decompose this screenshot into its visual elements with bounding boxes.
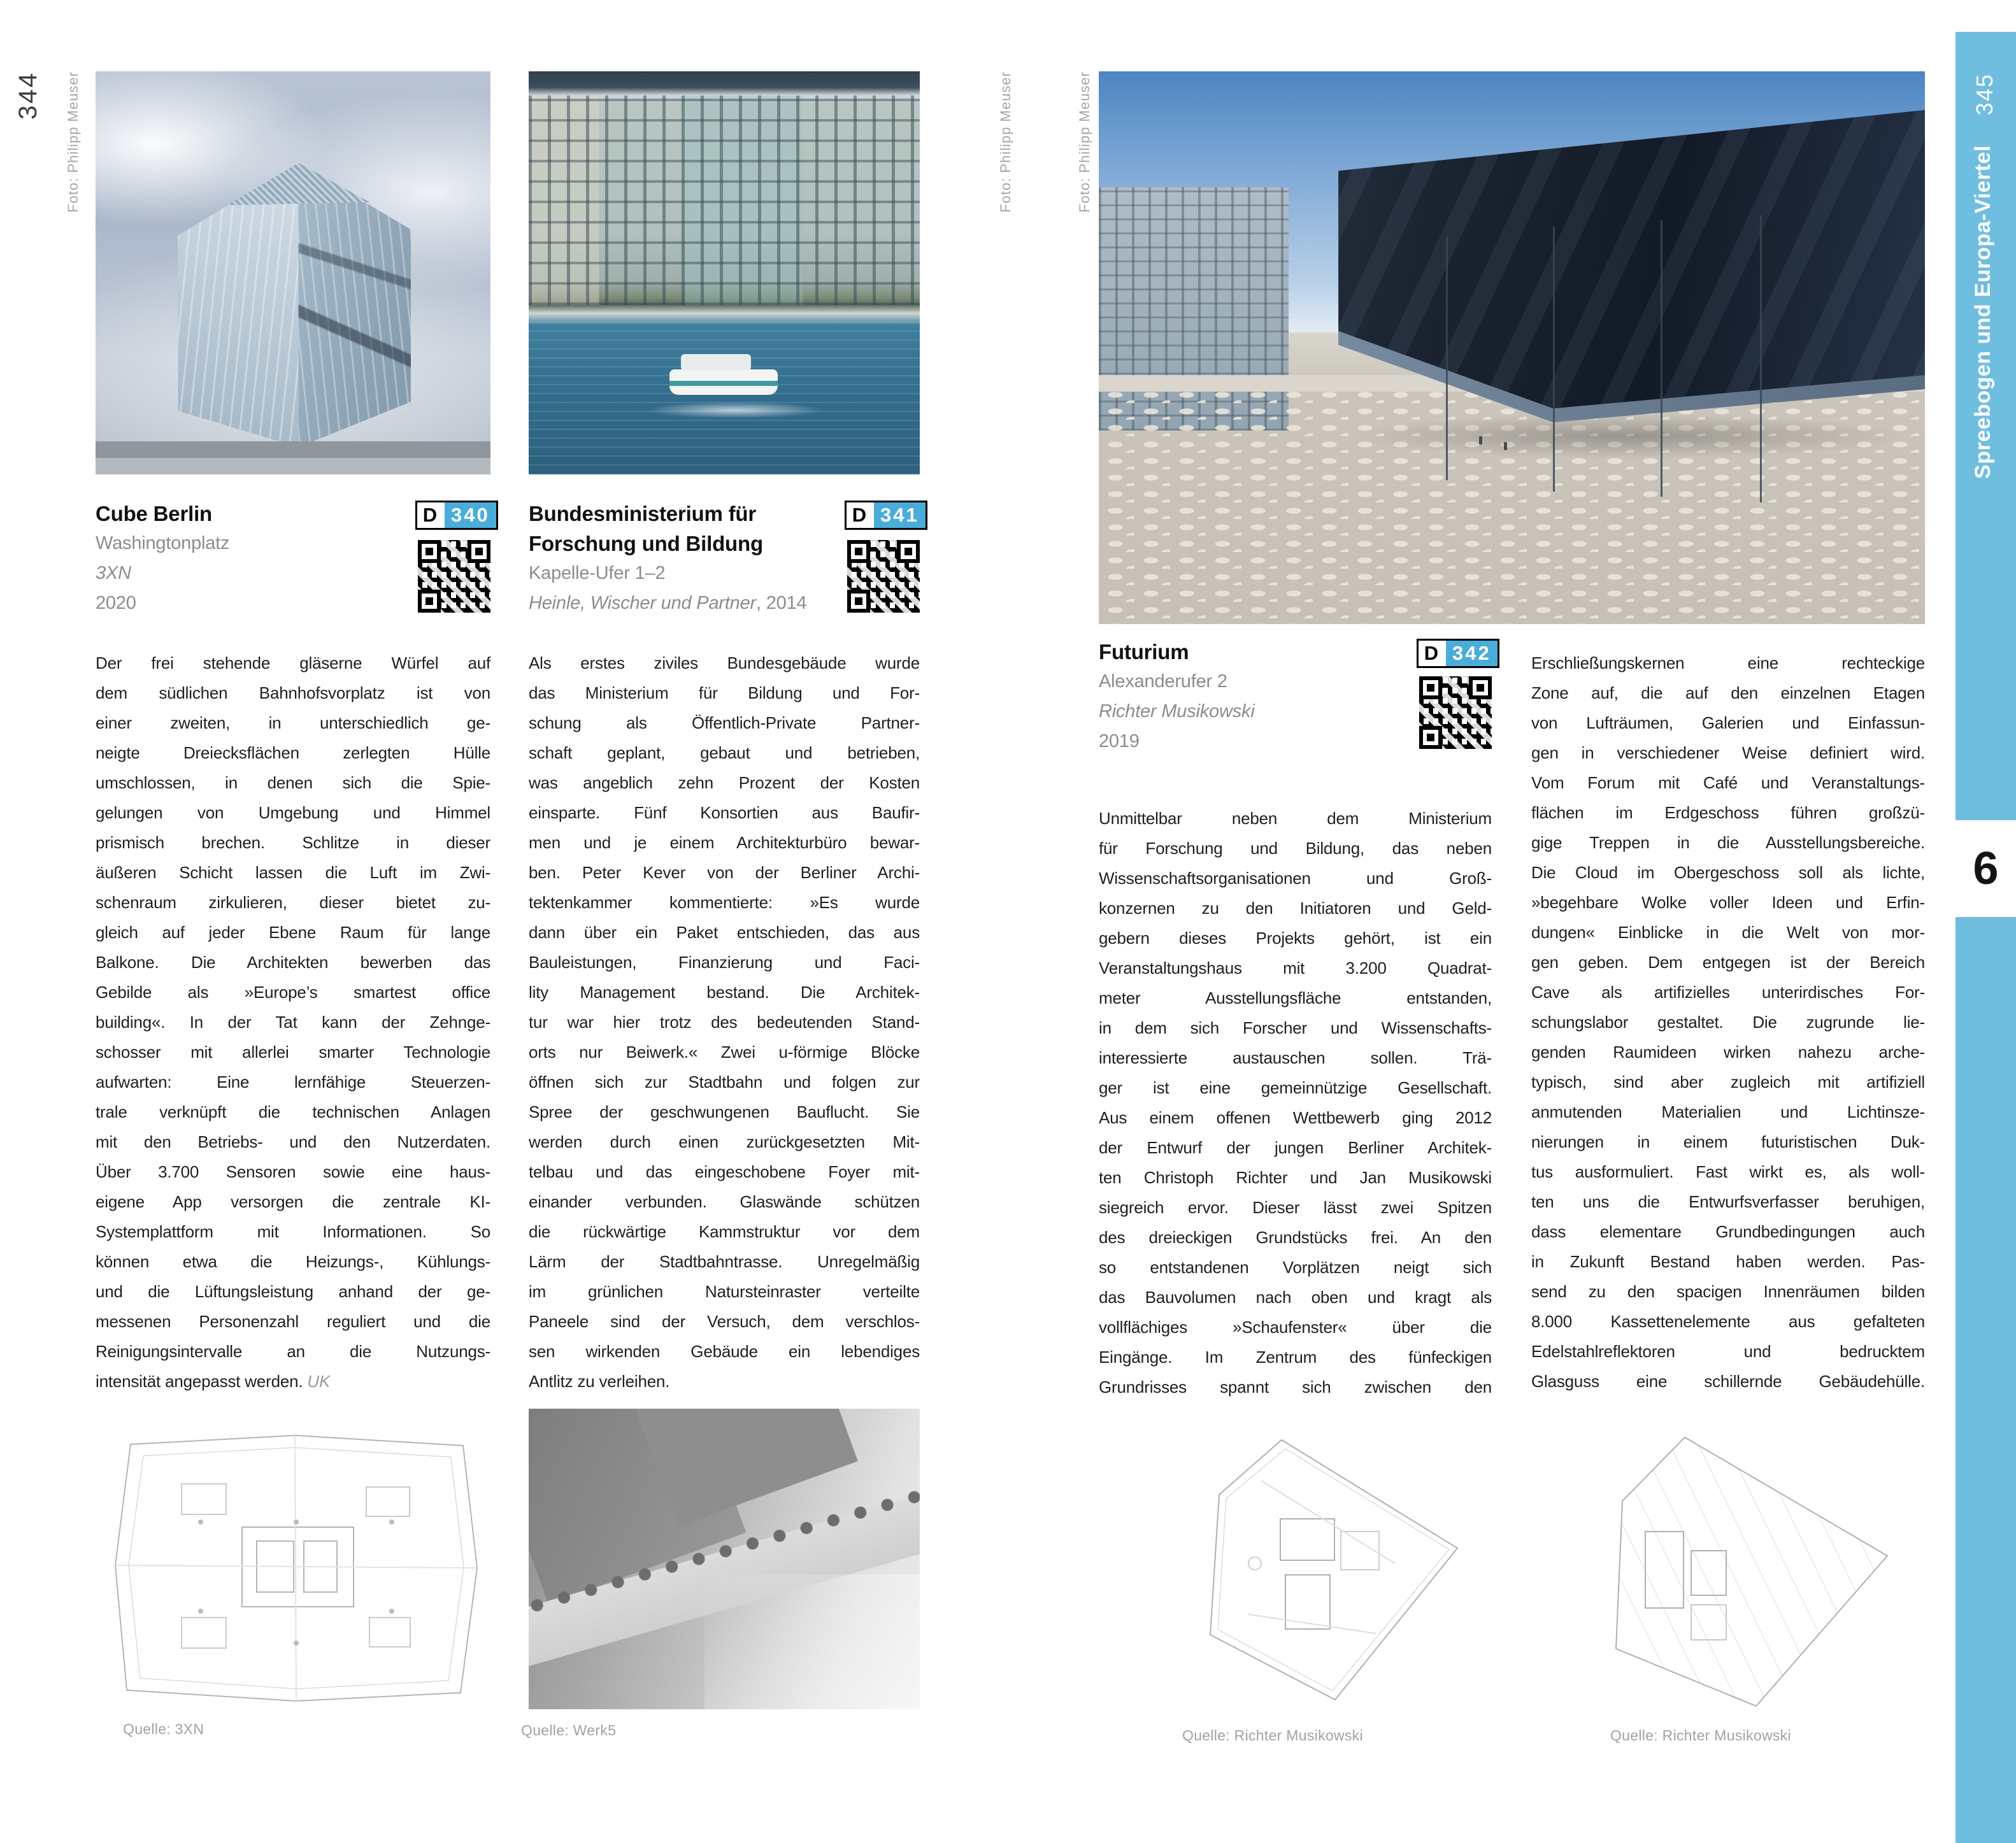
badge-number: 341	[874, 502, 926, 528]
qr-code	[418, 540, 490, 613]
photo-futurium	[1099, 71, 1925, 624]
badge-letter: D	[1419, 641, 1444, 666]
badge-letter: D	[417, 502, 443, 528]
body-text-cube: Der frei stehende gläserne Würfel auf de…	[96, 648, 490, 1367]
photo-credit: Foto: Philipp Meuser	[1078, 71, 1092, 213]
floor-plan-futurium-left	[1185, 1423, 1471, 1709]
entry-architect: Heinle, Wischer und Partner	[529, 593, 756, 613]
page-number-right: 345	[1973, 73, 1996, 115]
chapter-sidebar-bottom	[1955, 917, 2016, 1843]
lamp-post	[1553, 226, 1555, 492]
photo-credit: Foto: Philipp Meuser	[999, 71, 1013, 213]
entry-year: , 2014	[756, 593, 806, 613]
body-text-bmbf: Als erstes ziviles Bundesgebäude wurde d…	[529, 648, 920, 1367]
qr-finder-icon	[847, 590, 870, 613]
pavement-strip	[96, 458, 490, 474]
map-badge-d342: D 342	[1417, 639, 1499, 668]
figure-caption: Quelle: Richter Musikowski	[1610, 1727, 1791, 1744]
author-initials: UK	[307, 1372, 330, 1391]
photo-cube-berlin	[96, 71, 490, 474]
figure-caption: Quelle: 3XN	[123, 1721, 204, 1738]
qr-code	[847, 540, 920, 613]
window-grid	[529, 96, 920, 305]
ground-strip	[96, 441, 490, 458]
qr-finder-icon	[418, 540, 441, 563]
chapter-title: Spreebogen und Europa-Viertel	[1972, 145, 1994, 479]
aerial-model-photo	[529, 1409, 920, 1709]
map-badge-d341: D 341	[845, 501, 927, 530]
badge-number: 340	[445, 502, 496, 528]
chapter-number-tab: 6	[1955, 820, 2016, 917]
photo-bundesministerium	[529, 71, 920, 474]
body-text-bmbf-end: Antlitz zu verleihen.	[529, 1367, 920, 1397]
lamp-post	[1446, 237, 1448, 480]
pedestrian	[1504, 442, 1507, 450]
qr-finder-icon	[1419, 676, 1442, 699]
qr-finder-icon	[418, 590, 441, 613]
qr-finder-icon	[1419, 726, 1442, 749]
body-text-futurium-col2: Erschließungskernen eine rechteckige Zon…	[1531, 648, 1925, 1397]
lamp-post	[1760, 215, 1762, 502]
body-text-futurium-col1: Unmittelbar neben dem Ministerium für Fo…	[1099, 804, 1492, 1402]
qr-finder-icon	[468, 540, 490, 563]
book-spread: 344 Foto: Philipp Meuser Foto: Philipp M…	[0, 0, 2016, 1843]
page-number-left: 344	[15, 71, 41, 120]
qr-finder-icon	[847, 540, 870, 563]
figure-caption: Quelle: Werk5	[521, 1722, 616, 1739]
badge-number: 342	[1446, 641, 1498, 666]
floor-plan-cube	[105, 1427, 487, 1710]
body-text-cube-end: intensität angepasst werden. UK	[96, 1367, 490, 1397]
building-shadow	[1347, 414, 1908, 458]
excursion-boat	[669, 369, 778, 395]
body-last-line: intensität angepasst werden.	[96, 1372, 307, 1391]
floor-plan-futurium-right	[1596, 1423, 1901, 1711]
map-badge-d340: D 340	[415, 501, 498, 530]
photo-credit: Foto: Philipp Meuser	[66, 71, 80, 213]
pedestrian	[1479, 436, 1482, 445]
lamp-post	[1661, 220, 1662, 497]
cube-building-shape	[156, 148, 430, 450]
qr-finder-icon	[897, 540, 920, 563]
qr-finder-icon	[1469, 676, 1492, 699]
boat-wake	[646, 402, 824, 418]
badge-letter: D	[847, 502, 872, 528]
qr-code	[1419, 676, 1492, 749]
model-plaza	[704, 1574, 920, 1709]
figure-caption: Quelle: Richter Musikowski	[1182, 1727, 1363, 1744]
